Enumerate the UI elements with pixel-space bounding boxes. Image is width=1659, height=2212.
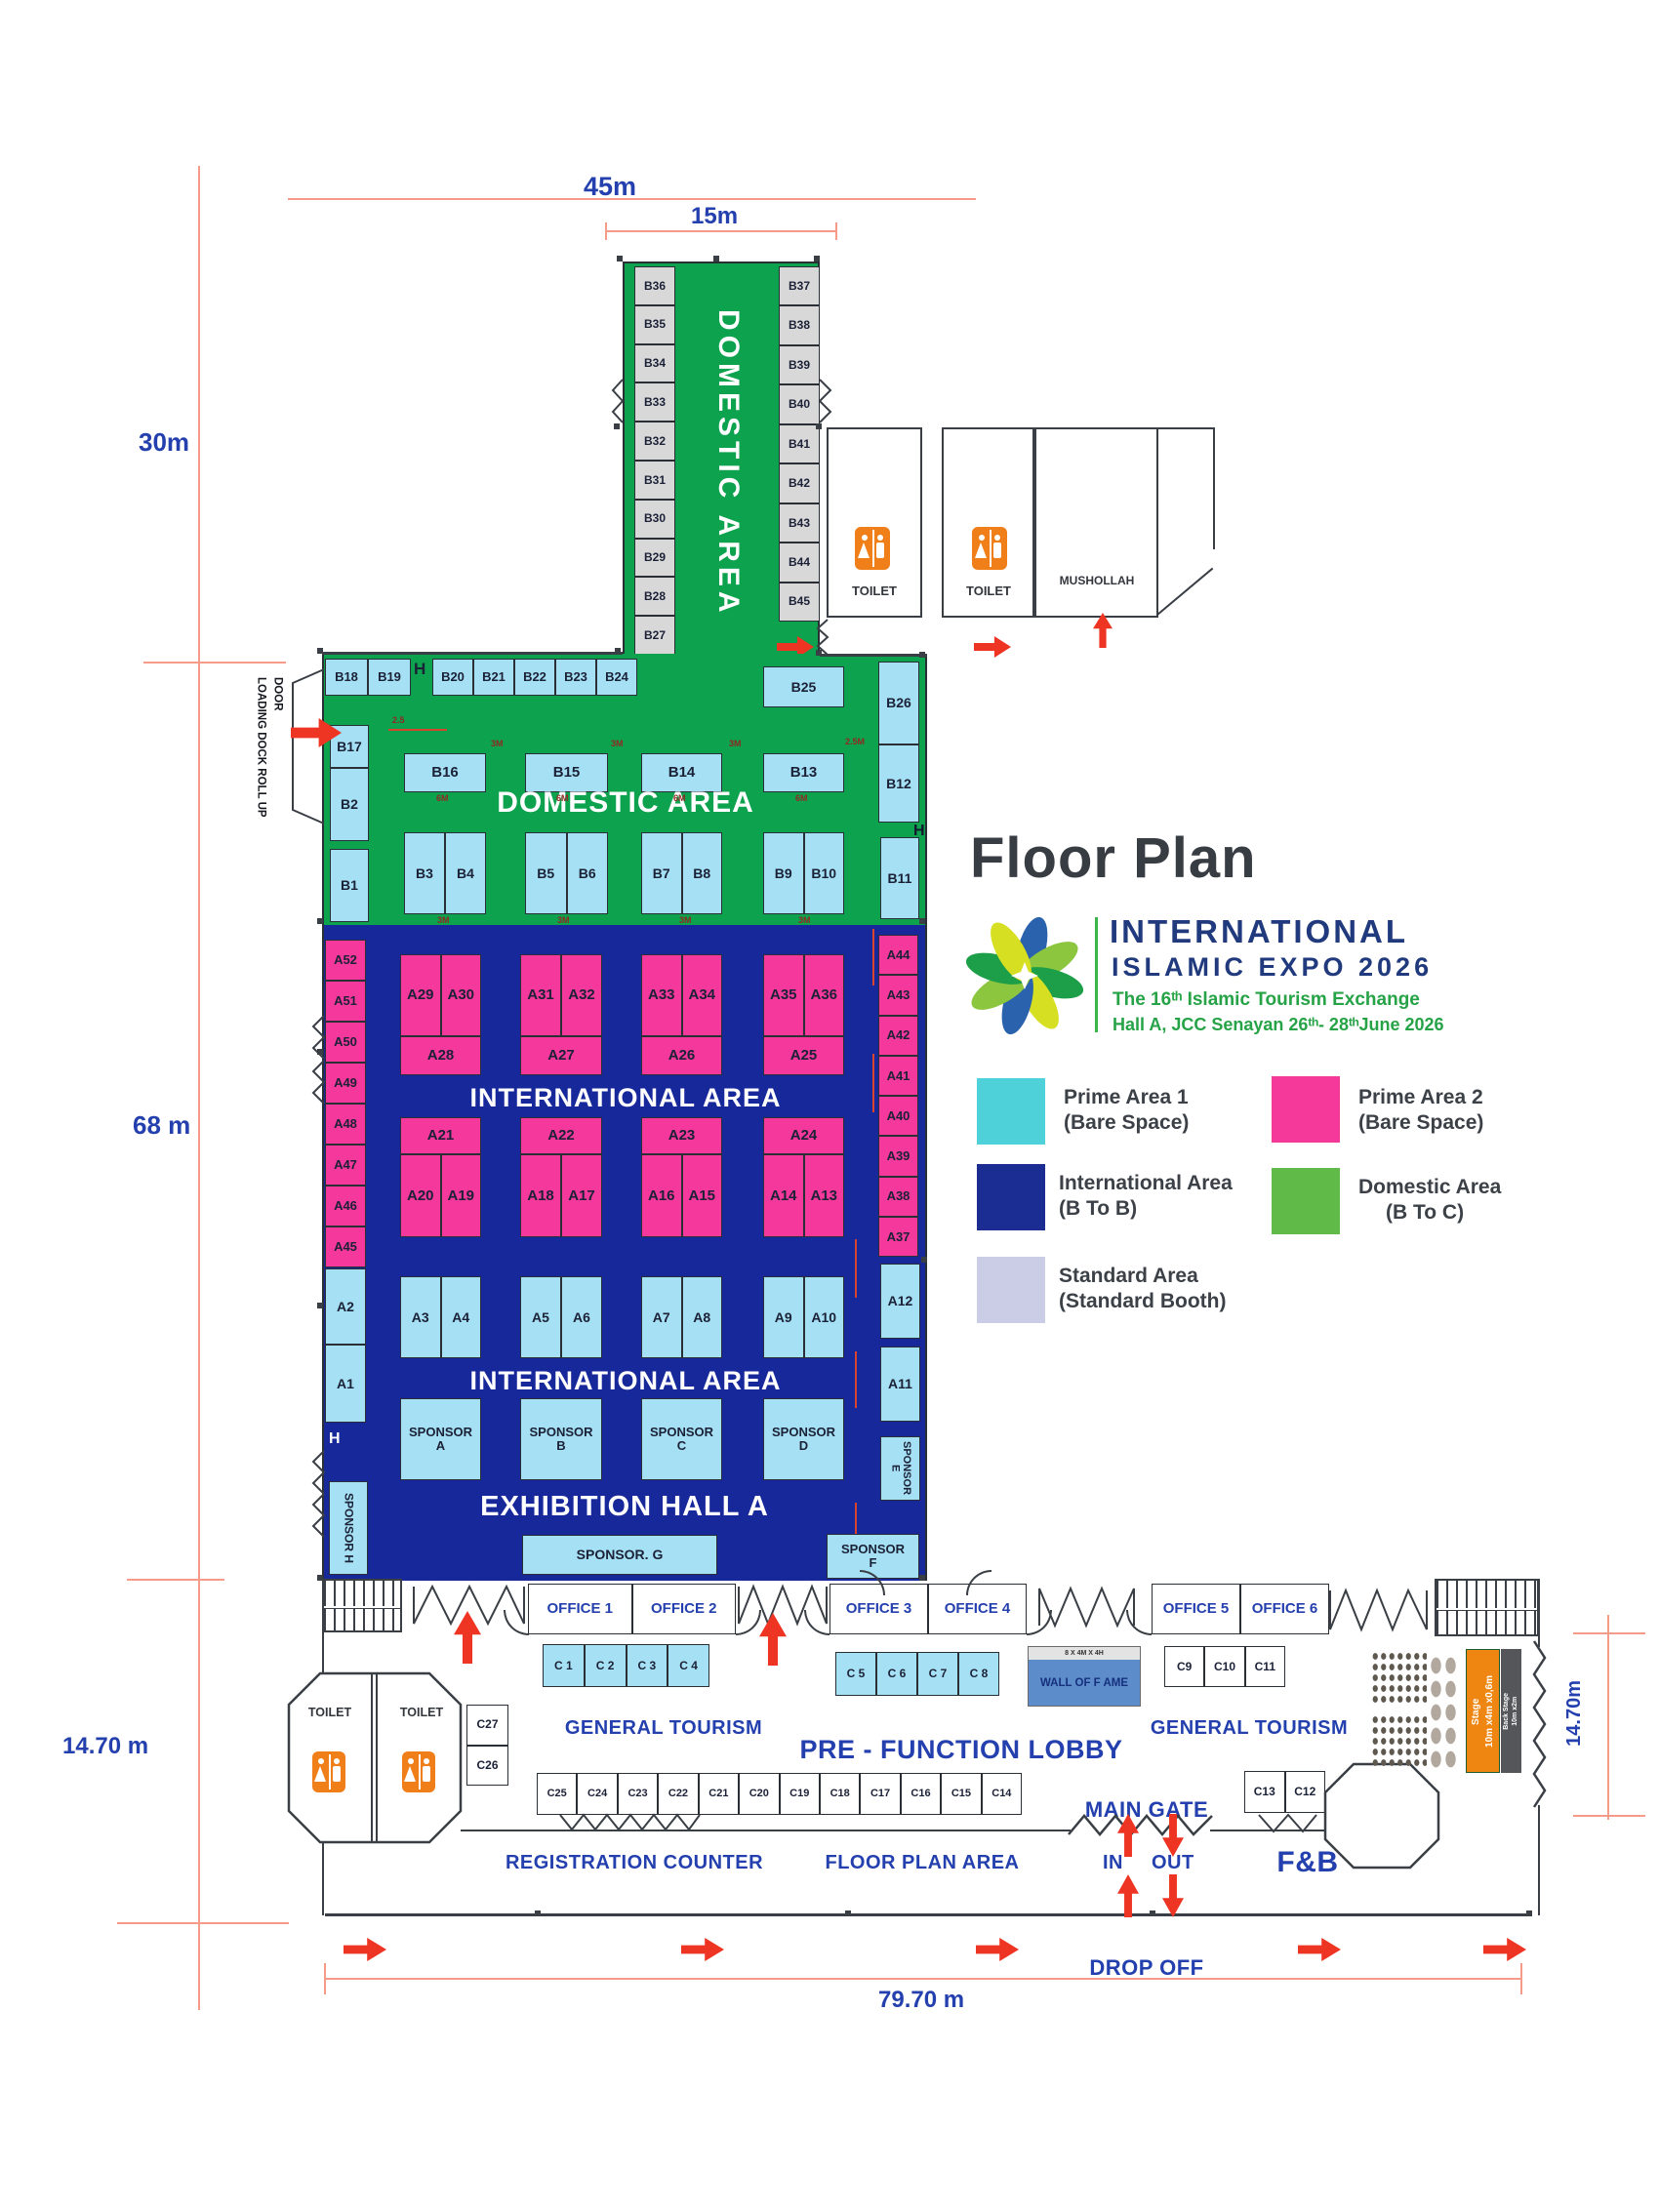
toilet-label: TOILET (384, 1706, 459, 1719)
booth: C25 (537, 1773, 577, 1815)
booth: B35 (634, 305, 675, 344)
sponsor-f-booth: SPONSORF (827, 1534, 919, 1579)
flow-arrow-right (1298, 1938, 1341, 1961)
door-arc (966, 1570, 991, 1595)
dim-7970: 79.70 m (878, 1987, 964, 2014)
booth: A33 (641, 954, 682, 1036)
booth: C 5 (835, 1652, 876, 1696)
booth: A44 (878, 935, 918, 975)
office-room: OFFICE 1 (528, 1584, 632, 1634)
dim-small: 3M (798, 915, 811, 925)
audience-seats (1371, 1714, 1427, 1769)
in-label: IN (1103, 1852, 1123, 1874)
booth: B44 (779, 543, 820, 582)
window-zigzag (818, 379, 833, 423)
dim-tick (835, 222, 837, 240)
toilet-icon (972, 527, 1007, 570)
sponsor-a-booth: SPONSORA (400, 1398, 481, 1480)
booth: A48 (325, 1104, 366, 1145)
booth: B42 (779, 463, 820, 503)
corridor-booths-right: B37B38B39B40B41B42B43B44B45 (779, 266, 820, 622)
booth: A6 (561, 1276, 602, 1358)
sponsor-h-booth: SPONSOR H (329, 1481, 368, 1575)
booth: A36 (804, 954, 845, 1036)
loading-dock-line1: LOADING DOCK (255, 677, 266, 765)
exhibition-hall-label: EXHIBITION HALL A (381, 1491, 869, 1523)
dim-small: 6M (795, 793, 808, 803)
booth-pair-c13-c12: C13C12 (1244, 1771, 1325, 1813)
booth-row-b20-b24: B20B21B22B23B24 (432, 659, 637, 696)
booth: B39 (779, 345, 820, 384)
booth: C13 (1244, 1771, 1285, 1813)
booth: B45 (779, 583, 820, 622)
sponsor-e-booth: SPONSOR E (880, 1436, 920, 1501)
booth: B33 (634, 382, 675, 422)
booth: B43 (779, 503, 820, 543)
dim-small: 6M (673, 793, 686, 803)
booth: A4 (441, 1276, 482, 1358)
dim-vline-left (198, 166, 200, 2010)
dim-small: 6M (436, 793, 449, 803)
booth: C 4 (668, 1644, 709, 1687)
page-title: Floor Plan (970, 825, 1458, 891)
window-zigzag (310, 1493, 326, 1538)
booth: C 2 (585, 1644, 627, 1687)
booth: C22 (658, 1773, 698, 1815)
dim-small: 3M (437, 915, 450, 925)
booth-row-c25-c14: C25C24C23C22C21C20C19C18C17C16C15C14 (537, 1773, 1022, 1815)
booth: A23 (641, 1117, 722, 1154)
booth: C 7 (917, 1652, 958, 1696)
backstage-line2: 10m x2m (1513, 1697, 1519, 1726)
dim-tick (1573, 1815, 1645, 1817)
fnb-label: F&B (1254, 1846, 1361, 1879)
booth: B9 (763, 832, 804, 914)
flow-arrow-right (1483, 1938, 1526, 1961)
booth: C23 (618, 1773, 658, 1815)
window-zigzag (310, 1015, 326, 1060)
sponsor-g-booth: SPONSOR. G (522, 1535, 717, 1575)
wall (1156, 427, 1215, 429)
window-zigzag (611, 379, 625, 423)
direction-arrow-right (974, 636, 1011, 658)
dim-small: 3M (611, 739, 624, 748)
legend-label-international: International Area (B To B) (1059, 1171, 1233, 1221)
booth-col-a44-a37: A44A43A42A41A40A39A38A37 (878, 935, 918, 1257)
booth-b2: B2 (330, 768, 369, 841)
dim-small: 2.5M (845, 737, 865, 746)
booth: B23 (555, 659, 596, 696)
booth: C20 (739, 1773, 779, 1815)
booth: A42 (878, 1016, 918, 1056)
booth: A41 (878, 1056, 918, 1096)
booth: B36 (634, 266, 675, 305)
booth-group-a35-a36-a25: A35A36 A25 (763, 954, 844, 1075)
wall-of-fame-label: WALL OF F AME (1029, 1660, 1140, 1706)
booth: B32 (634, 422, 675, 461)
flow-arrow-right (976, 1938, 1019, 1961)
wall (461, 1830, 1071, 1831)
booth-stack-c27-c26: C27C26 (466, 1705, 508, 1786)
sponsor-letter: F (870, 1556, 877, 1570)
sponsor-label: SPONSOR (409, 1426, 472, 1439)
flow-arrow-right (681, 1938, 724, 1961)
booth: A16 (641, 1154, 682, 1237)
dim-mark (855, 1351, 857, 1408)
booth: A43 (878, 975, 918, 1015)
back-stage-label: Back Stage 10m x2m (1502, 1693, 1519, 1730)
logo-line2: ISLAMIC EXPO 2026 (1112, 952, 1433, 983)
booth-a11: A11 (880, 1347, 920, 1422)
legend-label-prime2: Prime Area 2 (Bare Space) (1358, 1085, 1483, 1135)
booth-pair-b7-b8: B7B8 (641, 832, 722, 914)
toilet-icon (402, 1751, 435, 1792)
loading-dock-label: LOADING DOCK ROLL UP DOOR (252, 677, 286, 820)
booth: B3 (404, 832, 445, 914)
booth: A25 (763, 1036, 844, 1075)
legend-text: Prime Area 1 (1064, 1086, 1189, 1108)
booth: C 8 (958, 1652, 999, 1696)
booth: C9 (1164, 1646, 1204, 1687)
outer-wall-bottom (325, 1913, 1532, 1916)
wall (1538, 1805, 1540, 1915)
dim-15m-line (606, 230, 837, 232)
booth: C24 (577, 1773, 617, 1815)
man-icon (873, 535, 886, 560)
dim-tick (605, 222, 607, 240)
wall-zigzag-right (1530, 1641, 1548, 1809)
out-arrow-down (1162, 1874, 1184, 1917)
sponsor-letter: B (556, 1439, 565, 1453)
woman-icon (975, 535, 988, 560)
audience-seats (1371, 1651, 1427, 1706)
booth: A5 (520, 1276, 561, 1358)
logo-divider (1095, 917, 1098, 1032)
domestic-area-label: DOMESTIC AREA (411, 786, 840, 820)
dim-mark (855, 1239, 857, 1298)
booth-group-a22-a18-a17: A22 A18A17 (520, 1117, 602, 1237)
door-zigzag (1259, 1813, 1317, 1834)
booth: B8 (682, 832, 723, 914)
office-room: OFFICE 5 (1152, 1584, 1240, 1634)
sponsor-label: SPONSOR (529, 1426, 592, 1439)
booth: A15 (682, 1154, 723, 1237)
mushollah-door (1156, 568, 1213, 616)
booth-group-a29-a30-a28: A29A30 A28 (400, 954, 481, 1075)
dim-small: 2.5 (392, 715, 405, 725)
hydrant-marker: H (329, 1430, 342, 1448)
door-zigzag (816, 619, 829, 656)
international-area-label-1: INTERNATIONAL AREA (411, 1083, 840, 1113)
door-arc (1027, 1610, 1052, 1635)
booth: C 3 (627, 1644, 668, 1687)
booth: A45 (325, 1227, 366, 1267)
logo-line1: INTERNATIONAL (1110, 913, 1408, 950)
booth: C19 (780, 1773, 820, 1815)
dim-tick (127, 1579, 224, 1581)
booth: B30 (634, 500, 675, 539)
corridor-label: DOMESTIC AREA (683, 288, 773, 639)
wall-anchors (0, 0, 6, 6)
booth: A35 (763, 954, 804, 1036)
toilet-label: TOILET (834, 583, 914, 598)
dim-30m: 30m (139, 427, 189, 458)
booth: A40 (878, 1096, 918, 1136)
booth: C18 (820, 1773, 860, 1815)
booth-pair-a9-a10: A9A10 (763, 1276, 844, 1358)
booth: B22 (514, 659, 555, 696)
booth: A49 (325, 1063, 366, 1104)
booth: A20 (400, 1154, 441, 1237)
booth: A24 (763, 1117, 844, 1154)
wall (1213, 427, 1215, 549)
counter-zigzag (560, 1813, 701, 1832)
woman-icon (314, 1758, 327, 1784)
dim-mark (855, 1503, 857, 1534)
pre-function-lobby: PRE - FUNCTION LOBBY (756, 1735, 1166, 1765)
legend-label-prime1: Prime Area 1 (Bare Space) (1064, 1085, 1189, 1135)
legend-text: Prime Area 2 (1358, 1086, 1483, 1108)
woman-icon (858, 535, 870, 560)
dim-small: 3M (557, 915, 570, 925)
dim-small: 3M (729, 739, 742, 748)
booth: C 6 (876, 1652, 917, 1696)
booth: B20 (432, 659, 473, 696)
booth: C21 (699, 1773, 739, 1815)
sponsor-label: SPONSOR (772, 1426, 835, 1439)
door-arc (504, 1610, 529, 1635)
booth: A7 (641, 1276, 682, 1358)
booth: A18 (520, 1154, 561, 1237)
legend-text: International Area (1059, 1172, 1233, 1194)
sponsor-d-booth: SPONSORD (763, 1398, 844, 1480)
booth-a12: A12 (880, 1264, 920, 1339)
booth: C16 (901, 1773, 941, 1815)
backstage-line1: Back Stage (1503, 1693, 1510, 1730)
booth: A28 (400, 1036, 481, 1075)
direction-arrow-up (1093, 613, 1113, 648)
vip-seats (1429, 1654, 1456, 1769)
corridor-booths-left: B36B35B34B33B32B31B30B29B28B27 (634, 266, 675, 655)
general-tourism-right: GENERAL TOURISM (1113, 1717, 1386, 1740)
sponsor-letter: C (677, 1439, 686, 1453)
legend-swatch-domestic (1272, 1168, 1340, 1234)
booth: B31 (634, 461, 675, 500)
booth: C10 (1204, 1646, 1244, 1687)
booth-pair-a7-a8: A7A8 (641, 1276, 722, 1358)
toilet-icon (312, 1751, 345, 1792)
booth: B37 (779, 266, 820, 305)
office-room: OFFICE 6 (1240, 1584, 1329, 1634)
dim-1470-left: 14.70 m (62, 1733, 148, 1760)
sponsor-c-booth: SPONSORC (641, 1398, 722, 1480)
mushollah-room (1034, 427, 1158, 618)
booth-col-a52-a45: A52A51A50A49A48A47A46A45 (325, 940, 366, 1267)
main-gate-zigzag (1069, 1813, 1213, 1838)
booth: B5 (525, 832, 567, 914)
logo-line3: The 16ᵗʰ Islamic Tourism Exchange (1113, 989, 1420, 1011)
stage-line1: Stage (1471, 1698, 1481, 1724)
sponsor-letter: A (436, 1439, 445, 1453)
door-arc (804, 1610, 829, 1635)
dim-mark (872, 929, 874, 985)
booth-row-b18-b19: B18B19 (325, 659, 411, 696)
dim-tick (1573, 1632, 1645, 1634)
booth-b25: B25 (763, 666, 844, 707)
legend-label-domestic: Domestic Area (B To C) (1358, 1175, 1501, 1225)
booth-row-c5-c8: C 5C 6C 7C 8 (835, 1652, 999, 1696)
floor-plan-page: 45m 15m 30m 68 m 14.70 m 14.70m 79.70 m … (0, 0, 1659, 2212)
booth: A9 (763, 1276, 804, 1358)
booth: B21 (473, 659, 514, 696)
booth: C26 (466, 1746, 508, 1787)
booth: A22 (520, 1117, 602, 1154)
booth-a2: A2 (325, 1268, 366, 1345)
booth: A32 (561, 954, 602, 1036)
legend-label-standard: Standard Area (Standard Booth) (1059, 1264, 1226, 1313)
booth: B10 (804, 832, 845, 914)
in-arrow-up (1117, 1874, 1139, 1917)
legend-text: (Bare Space) (1064, 1111, 1189, 1134)
legend-text: (B To B) (1059, 1197, 1137, 1220)
sponsor-label: SPONSOR (650, 1426, 713, 1439)
booth-group-a33-a34-a26: A33A34 A26 (641, 954, 722, 1075)
office-row-1-2: OFFICE 1OFFICE 2 (528, 1584, 736, 1634)
wall-of-fame: 8 X 4M X 4H WALL OF F AME (1028, 1646, 1141, 1707)
booth: A19 (441, 1154, 482, 1237)
booth: A38 (878, 1177, 918, 1217)
legend-text: (B To C) (1358, 1201, 1464, 1224)
booth: A51 (325, 981, 366, 1022)
dim-tick (324, 1963, 326, 1994)
legend-text: Domestic Area (1358, 1176, 1501, 1198)
booth: B18 (325, 659, 368, 696)
man-icon (991, 535, 1003, 560)
booth: C27 (466, 1705, 508, 1746)
out-label: OUT (1152, 1852, 1194, 1874)
dim-tick (143, 662, 286, 664)
booth-group-a23-a16-a15: A23 A16A15 (641, 1117, 722, 1237)
window-zigzag (310, 1450, 326, 1495)
stage: Stage 10m x4m x0,6m (1466, 1649, 1500, 1773)
booth: A27 (520, 1036, 602, 1075)
sponsor-label: SPONSOR (841, 1543, 905, 1556)
toilet-label: TOILET (293, 1706, 367, 1719)
booth: B40 (779, 384, 820, 423)
booth: A26 (641, 1036, 722, 1075)
booth: A14 (763, 1154, 804, 1237)
booth: A34 (682, 954, 723, 1036)
legend-swatch-international (977, 1164, 1045, 1230)
dim-tick (117, 1922, 289, 1924)
booth: C11 (1245, 1646, 1285, 1687)
flow-arrow-right (344, 1938, 386, 1961)
booth: B19 (368, 659, 411, 696)
booth: A50 (325, 1022, 366, 1063)
booth: B27 (634, 616, 675, 655)
expo-logo-flower (964, 913, 1085, 1038)
booth-group-a24-a14-a13: A24 A14A13 (763, 1117, 844, 1237)
door-arc (736, 1610, 761, 1635)
dim-15m: 15m (691, 203, 738, 230)
booth: C12 (1285, 1771, 1326, 1813)
stage-line2: 10m x4m x0,6m (1484, 1675, 1495, 1748)
back-stage: Back Stage 10m x2m (1501, 1649, 1521, 1773)
mushollah-label: MUSHOLLAH (1040, 574, 1153, 587)
booth: B38 (779, 305, 820, 344)
booth-row-c9-c11: C9C10C11 (1164, 1646, 1285, 1687)
dim-68m: 68 m (133, 1110, 190, 1141)
booth: B34 (634, 344, 675, 383)
sponsor-letter: D (799, 1439, 808, 1453)
window-zigzag (310, 1060, 326, 1105)
booth-pair-b9-b10: B9B10 (763, 832, 844, 914)
office-room: OFFICE 2 (632, 1584, 737, 1634)
staircase-right (1435, 1579, 1539, 1636)
booth: B28 (634, 577, 675, 616)
booth-b12: B12 (878, 744, 919, 823)
staircase-left (322, 1579, 402, 1632)
booth: B4 (445, 832, 486, 914)
booth-group-a31-a32-a27: A31A32 A27 (520, 954, 602, 1075)
booth: A39 (878, 1136, 918, 1176)
booth: A31 (520, 954, 561, 1036)
door-arc (1126, 1610, 1152, 1635)
booth-b1: B1 (330, 849, 369, 922)
stage-label: Stage 10m x4m x0,6m (1470, 1675, 1497, 1748)
booth: A29 (400, 954, 441, 1036)
booth-a1: A1 (325, 1345, 366, 1423)
dim-tick (1520, 1963, 1522, 1994)
registration-counter-label: REGISTRATION COUNTER (468, 1852, 800, 1874)
booth: B6 (567, 832, 609, 914)
dim-small: 3M (679, 915, 692, 925)
wall (820, 654, 927, 657)
booth: C15 (941, 1773, 981, 1815)
floor-plan-area-label: FLOOR PLAN AREA (781, 1852, 1064, 1874)
booth: A47 (325, 1145, 366, 1186)
booth: B41 (779, 424, 820, 463)
booth: A30 (441, 954, 482, 1036)
booth-pair-a3-a4: A3A4 (400, 1276, 481, 1358)
booth-b11: B11 (880, 837, 919, 919)
wall-of-fame-size: 8 X 4M X 4H (1029, 1647, 1140, 1660)
booth: A37 (878, 1217, 918, 1257)
booth: A52 (325, 940, 366, 981)
dim-mark (388, 729, 447, 731)
booth: A13 (804, 1154, 845, 1237)
door-zigzag (1038, 1581, 1136, 1631)
booth: A21 (400, 1117, 481, 1154)
hydrant-marker: H (913, 823, 926, 840)
man-icon (330, 1758, 343, 1784)
booth: B7 (641, 832, 682, 914)
dim-small: 3M (491, 739, 504, 748)
dim-vline-right (1607, 1615, 1609, 1820)
logo-line4: Hall A, JCC Senayan 26ᵗʰ- 28ᵗʰJune 2026 (1113, 1015, 1444, 1035)
legend-swatch-standard (977, 1257, 1045, 1323)
loading-dock-outline (289, 667, 326, 825)
booth: C17 (860, 1773, 900, 1815)
drop-off-label: DROP OFF (1064, 1955, 1230, 1981)
booth: C 1 (543, 1644, 585, 1687)
hydrant-marker: H (414, 660, 426, 679)
legend-text: Standard Area (1059, 1265, 1198, 1287)
booth-pair-b5-b6: B5B6 (525, 832, 608, 914)
booth: A10 (804, 1276, 845, 1358)
dim-7970-line (325, 1978, 1522, 1980)
woman-icon (404, 1758, 417, 1784)
